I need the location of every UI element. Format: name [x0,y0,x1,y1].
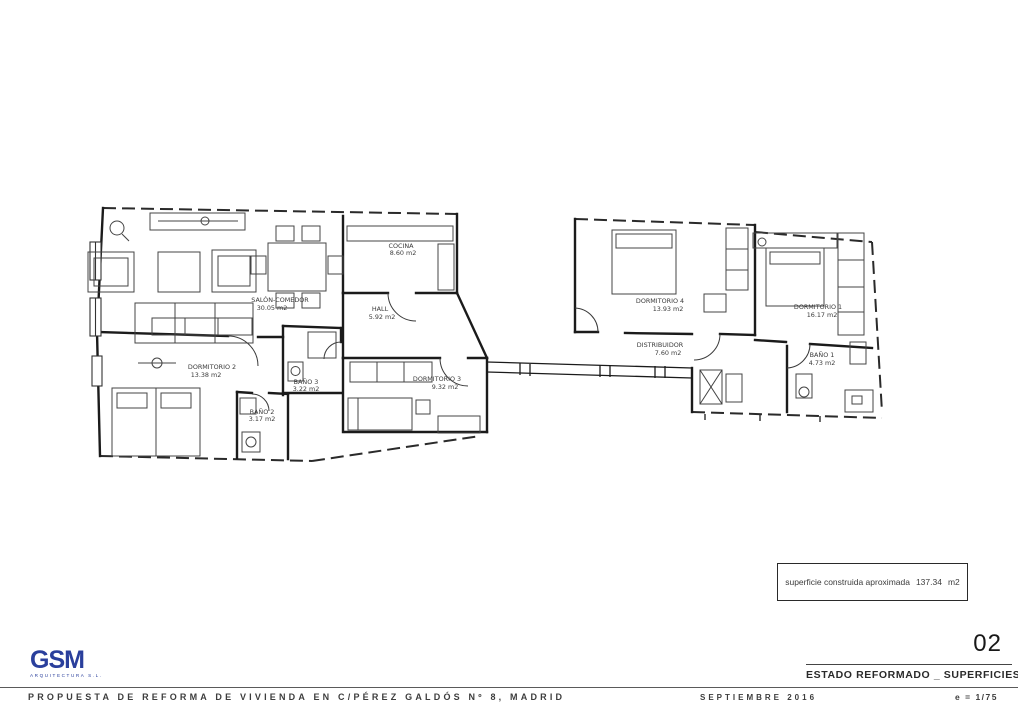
sheet-number: 02 [973,630,1002,658]
label-cocina-area: 8.60 m2 [390,249,417,257]
drawing-scale: e = 1/75 [955,692,998,702]
label-dorm1-area: 16.17 m2 [807,311,838,319]
furniture-bano3 [288,332,336,381]
label-distribuidor-area: 7.60 m2 [655,349,682,357]
drawing-date: SEPTIEMBRE 2016 [700,693,817,702]
area-note-unit: m2 [948,577,960,587]
label-hall-name: HALL [372,305,389,313]
furniture-bano2 [240,398,260,452]
furniture-salon [88,213,343,343]
area-note-value: 137.34 [916,577,942,587]
furniture-dorm3 [348,362,480,433]
furniture-dorm2 [112,318,252,456]
area-note-label: superficie construida aproximada [785,577,910,587]
furniture-dorm1 [753,233,864,335]
gsm-logo-text: GSM [30,648,103,673]
north-symbol [110,221,124,235]
titleblock-rule [0,687,1018,688]
sheet-title: ESTADO REFORMADO _ SUPERFICIES [806,669,1012,681]
label-distribuidor-name: DISTRIBUIDOR [637,341,684,349]
project-title: PROPUESTA DE REFORMA DE VIVIENDA EN C/PÉ… [28,692,565,702]
label-dorm2-name: DORMITORIO 2 [188,363,236,371]
corridor-window-wall [487,362,820,422]
gsm-logo: GSM ARQUITECTURA S.L. [30,648,103,679]
label-bano2-area: 3.17 m2 [249,415,276,423]
label-dorm4-area: 13.93 m2 [653,305,684,313]
label-hall-area: 5.92 m2 [369,313,396,321]
plan-walls [97,208,872,459]
room-labels: SALÓN-COMEDOR 30.05 m2 HALL 5.92 m2 COCI… [188,242,842,423]
label-bano1-name: BAÑO 1 [810,350,835,359]
label-salon-area: 30.05 m2 [257,304,288,312]
label-dorm3-name: DORMITORIO 3 [413,375,461,383]
label-salon-name: SALÓN-COMEDOR [251,295,309,304]
facade-windows [90,242,102,386]
label-dorm4-name: DORMITORIO 4 [636,297,684,305]
label-bano1-area: 4.73 m2 [809,359,836,367]
label-bano3-area: 3.22 m2 [293,385,320,393]
sheet-title-block: ESTADO REFORMADO _ SUPERFICIES [806,664,1012,681]
drawing-sheet: SALÓN-COMEDOR 30.05 m2 HALL 5.92 m2 COCI… [0,0,1018,720]
label-dorm1-name: DORMITORIO 1 [794,303,842,311]
gsm-logo-subtext: ARQUITECTURA S.L. [30,674,103,679]
label-dorm3-area: 9.32 m2 [432,383,459,391]
label-dorm2-area: 13.38 m2 [191,371,222,379]
furniture-cocina [347,226,454,290]
area-note-box: superficie construida aproximada 137.34 … [777,563,968,601]
floor-plan: SALÓN-COMEDOR 30.05 m2 HALL 5.92 m2 COCI… [0,0,1018,560]
